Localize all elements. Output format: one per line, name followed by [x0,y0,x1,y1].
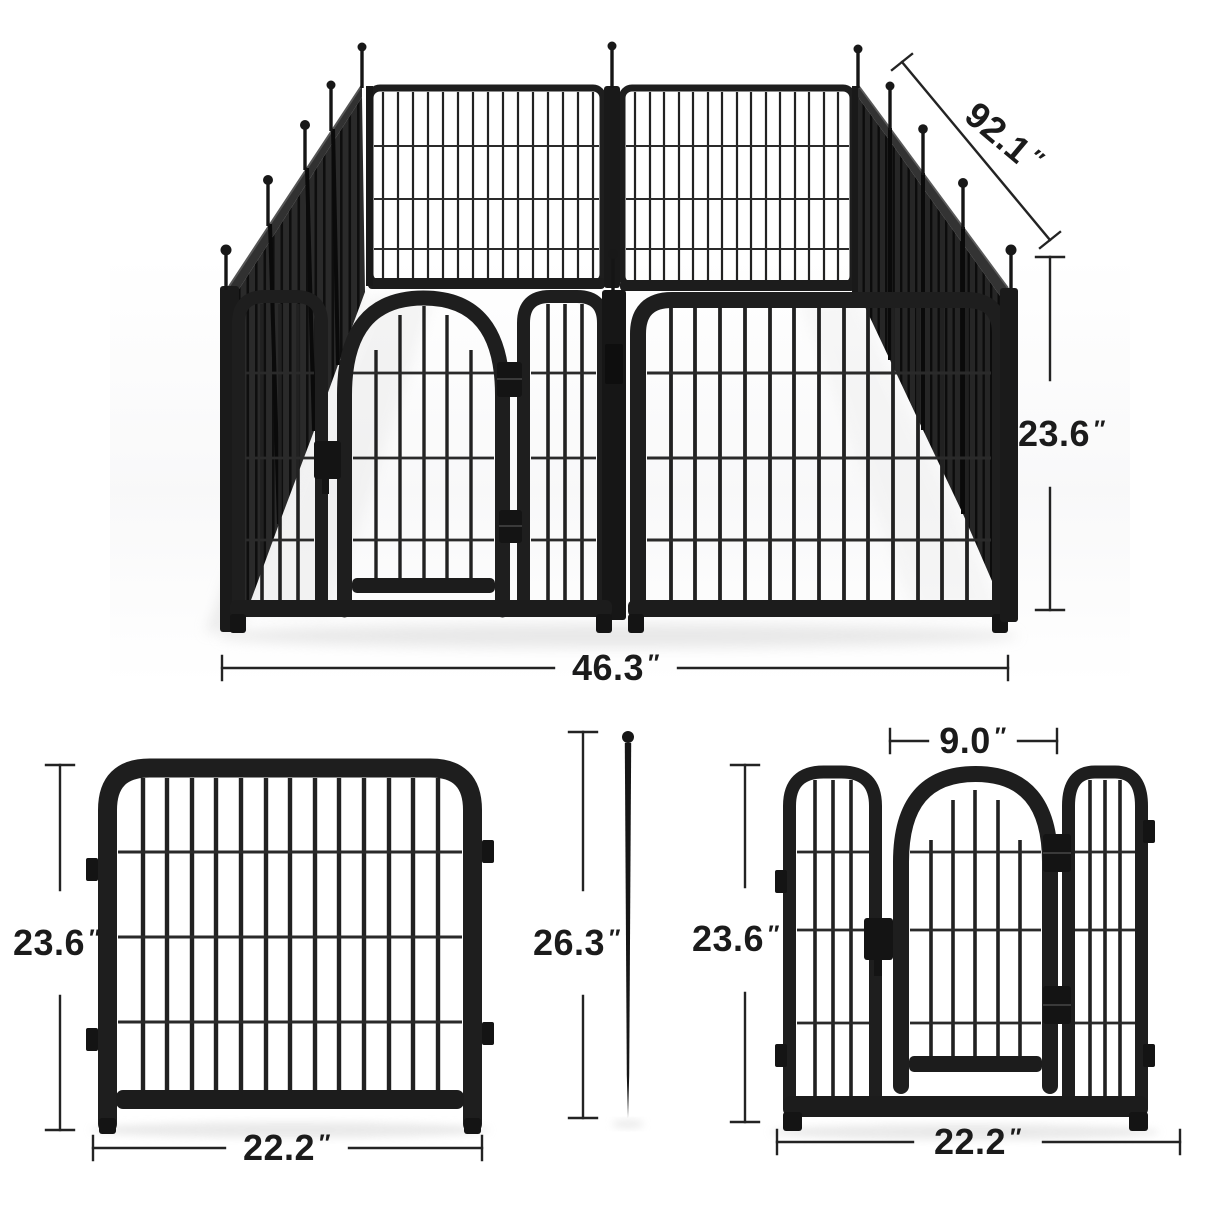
playpen-3d-view: 92.1″ 23.6″ 46.3″ [110,42,1130,689]
dim-door-panel-height-value: 23.6 [692,918,764,959]
dim-door-panel-height-label: 23.6″ [692,918,780,959]
dim-door-width-label: 9.0″ [939,720,1007,761]
panel-connector-clip [775,1044,787,1067]
dim-door-panel-width-unit: ″ [1010,1124,1022,1151]
panel-connector-clip [1143,820,1155,843]
dim-width-value: 46.3 [572,647,644,688]
ground-stake-view: 26.3″ [533,731,644,1128]
dimension-door-width: 9.0″ [890,720,1057,761]
front-junction-post [602,290,626,620]
dim-width-unit: ″ [648,650,660,677]
panel-connector-clip [1143,1044,1155,1067]
dim-panel-width-value: 22.2 [243,1127,315,1168]
panel-connector-clip [86,1028,98,1051]
panel-connector-clip [775,870,787,893]
dim-panel-width-unit: ″ [319,1130,331,1157]
dim-door-width-value: 9.0 [939,720,991,761]
dimension-stake-length: 26.3″ [533,732,621,1118]
product-dimension-diagram: 92.1″ 23.6″ 46.3″ 23.6″ [0,0,1214,1214]
dim-height-unit: ″ [1094,416,1106,443]
dim-stake-length-label: 26.3″ [533,922,621,963]
dim-panel-height-label: 23.6″ [13,922,101,963]
dim-door-width-unit: ″ [995,723,1007,750]
single-panel-view: 23.6″ 22.2″ [13,765,494,1168]
panel-connector-clip [86,858,98,881]
door-panel-view: 9.0″ 23.6″ 22.2″ [692,720,1180,1162]
dim-stake-length-value: 26.3 [533,922,605,963]
dim-height-value: 23.6 [1018,413,1090,454]
panel-connector-clip [482,1022,494,1045]
stake-rod [625,743,631,1118]
dim-depth-label: 92.1″ [957,94,1051,182]
front-right-corner-post [1000,288,1018,622]
dimension-panel-height: 23.6″ [13,765,101,1130]
dim-door-panel-width-value: 22.2 [934,1121,1006,1162]
stake-ball-top [622,731,634,743]
diagram-canvas: 92.1″ 23.6″ 46.3″ 23.6″ [0,0,1214,1214]
dim-stake-length-unit: ″ [609,925,621,952]
dim-panel-height-unit: ″ [89,925,101,952]
door-latch [314,441,341,479]
dim-door-panel-height-unit: ″ [768,921,780,948]
door-latch [864,918,893,960]
dimension-door-panel-height: 23.6″ [692,765,780,1122]
panel-connector-clip [482,840,494,863]
dim-panel-height-value: 23.6 [13,922,85,963]
